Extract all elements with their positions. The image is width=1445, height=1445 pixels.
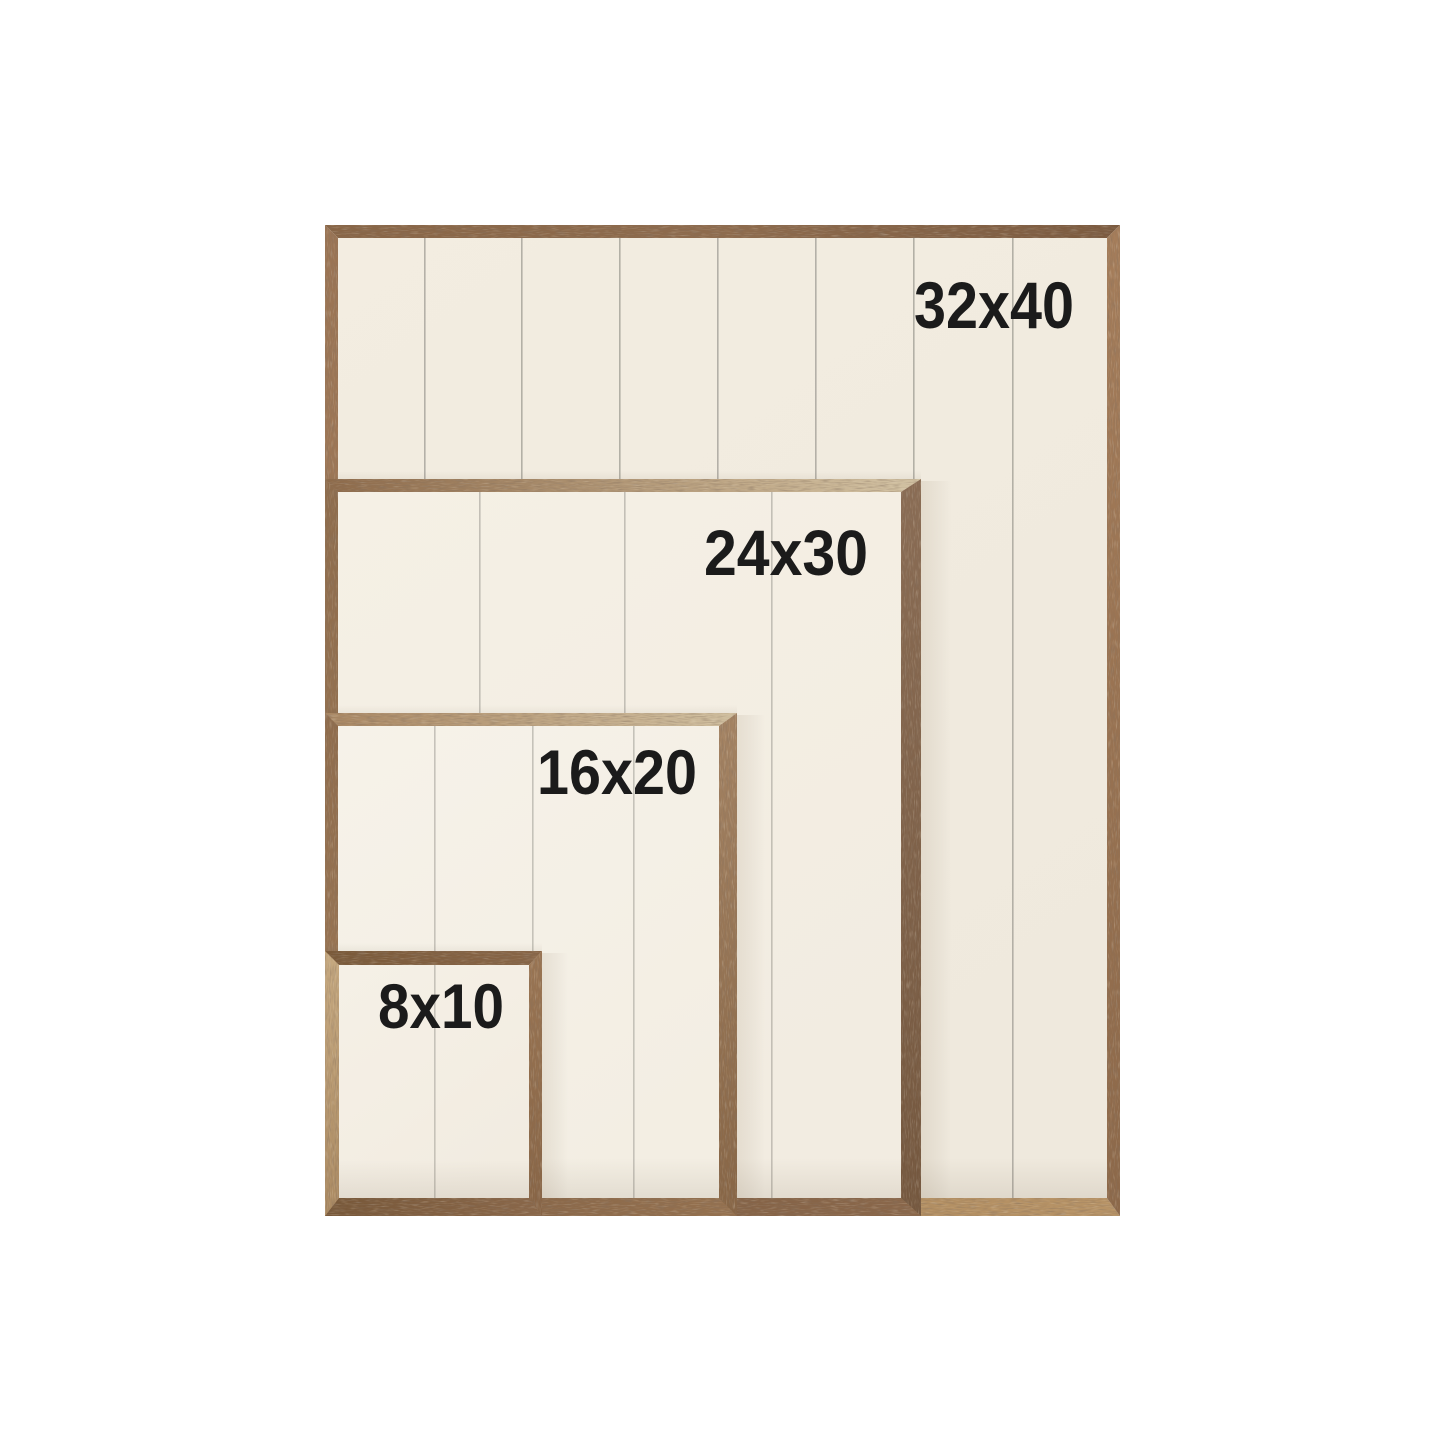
svg-text:16x20: 16x20 — [537, 738, 697, 808]
svg-text:24x30: 24x30 — [704, 517, 868, 589]
svg-text:32x40: 32x40 — [914, 268, 1074, 342]
svg-text:8x10: 8x10 — [378, 972, 504, 1042]
